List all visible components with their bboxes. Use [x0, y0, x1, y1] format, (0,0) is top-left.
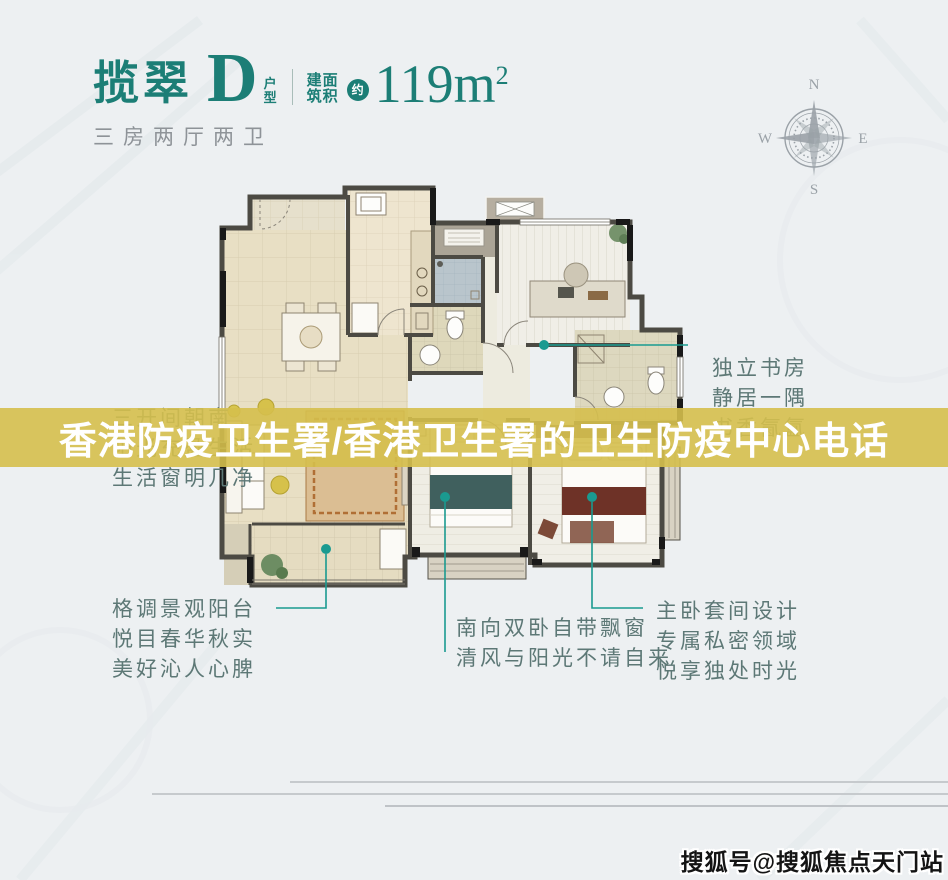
- area-label-row2: 筑积: [307, 89, 339, 105]
- annotation-line: 专属私密领域: [656, 626, 800, 656]
- deco-line-2: [152, 793, 948, 795]
- compass-east-label: E: [858, 131, 867, 147]
- annotation-master-suite: 主卧套间设计 专属私密领域 悦享独处时光: [656, 596, 800, 686]
- unit-type-char-1: 户: [264, 77, 278, 91]
- compass-south-label: S: [810, 182, 818, 197]
- overlay-banner: 香港防疫卫生署/香港卫生署的卫生防疫中心电话: [0, 408, 948, 467]
- unit-type-label: 户 型: [264, 77, 278, 105]
- area-label: 建面 筑积: [307, 73, 339, 105]
- overlay-banner-text: 香港防疫卫生署/香港卫生署的卫生防疫中心电话: [59, 410, 890, 465]
- annotation-south-bedrooms: 南向双卧自带飘窗 清风与阳光不请自来: [456, 613, 672, 673]
- annotation-line: 悦享独处时光: [656, 656, 800, 686]
- annotation-line: 独立书房: [712, 353, 808, 383]
- annotation-line: 美好沁人心脾: [112, 654, 256, 684]
- area-number: 119m: [375, 54, 496, 114]
- compass-north-label: N: [809, 77, 820, 93]
- header-divider: [292, 69, 293, 105]
- approx-badge: 约: [347, 79, 369, 101]
- compass-icon: N S W E: [752, 72, 877, 197]
- area-label-row1: 建面: [307, 73, 339, 89]
- sohu-watermark: 搜狐号@搜狐焦点天门站: [681, 843, 944, 877]
- annotation-line: 生活窗明几净: [112, 463, 256, 493]
- annotation-line: 悦目春华秋实: [112, 624, 256, 654]
- deco-line-1: [290, 781, 948, 783]
- annotation-line: 主卧套间设计: [656, 596, 800, 626]
- unit-letter: D: [207, 50, 258, 107]
- layout-subtitle: 三房两厅两卫: [93, 121, 509, 151]
- unit-title-row: 揽翠 D 户 型 建面 筑积 约 119m2: [93, 50, 509, 107]
- project-name: 揽翠: [93, 61, 193, 107]
- floor-plan: [190, 185, 685, 595]
- annotation-line: 南向双卧自带飘窗: [456, 613, 672, 643]
- annotation-line: 格调景观阳台: [112, 594, 256, 624]
- poster: 揽翠 D 户 型 建面 筑积 约 119m2 三房两厅两卫: [0, 0, 948, 880]
- header: 揽翠 D 户 型 建面 筑积 约 119m2 三房两厅两卫: [93, 50, 509, 151]
- annotation-line: 清风与阳光不请自来: [456, 643, 672, 673]
- annotation-view-balcony: 格调景观阳台 悦目春华秋实 美好沁人心脾: [112, 594, 256, 684]
- compass-west-label: W: [758, 131, 773, 147]
- area-value: 119m2: [375, 62, 509, 108]
- deco-line-3: [385, 805, 948, 807]
- unit-type-char-2: 型: [264, 91, 278, 105]
- area-exponent: 2: [496, 61, 509, 90]
